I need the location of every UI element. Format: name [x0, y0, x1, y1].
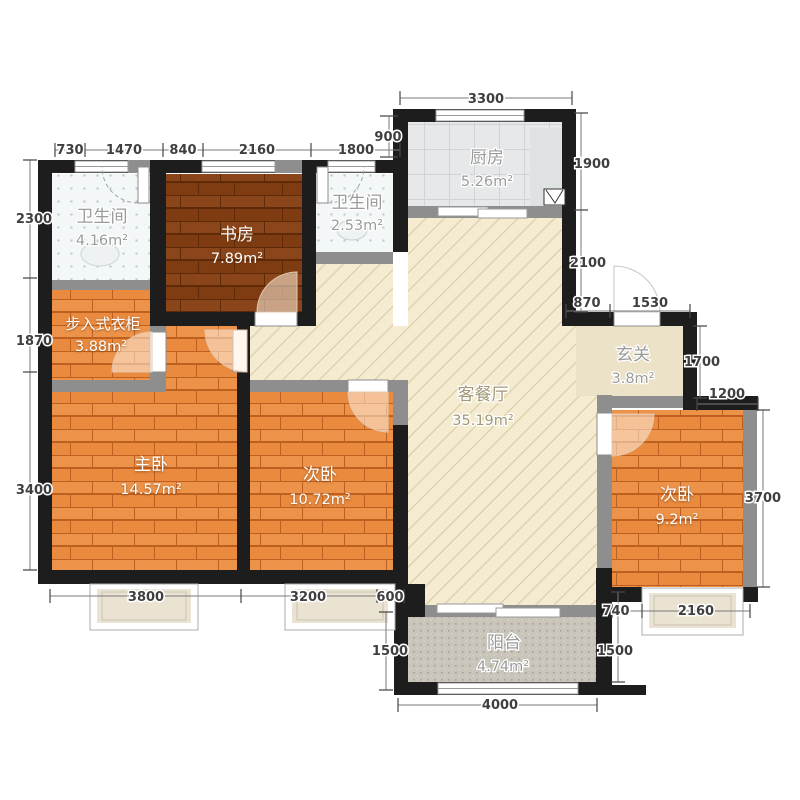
- floor-corridor: [250, 326, 408, 380]
- wall: [562, 109, 576, 326]
- room-label-bed3: 次卧: [660, 485, 694, 505]
- wall: [302, 160, 316, 326]
- dim-balcony-left-1500: 1500: [372, 644, 408, 659]
- room-label-bed2: 次卧: [303, 465, 337, 485]
- room-area-living: 35.19m²: [452, 413, 513, 429]
- wall: [38, 570, 408, 584]
- room-label-living: 客餐厅: [458, 385, 509, 405]
- room-label-balcony: 阳台: [487, 633, 521, 653]
- kitchen-slider-pane2: [478, 209, 527, 218]
- dim-top-840: 840: [169, 143, 196, 158]
- room-label-bath1: 卫生间: [77, 207, 128, 227]
- room-area-balcony: 4.74m²: [477, 659, 529, 675]
- room-area-kitchen: 5.26m²: [461, 174, 513, 190]
- dim-left-1870: 1870: [16, 334, 52, 349]
- floor-master: [52, 392, 237, 570]
- wall: [38, 380, 166, 392]
- dim-entry-870: 870: [573, 296, 600, 311]
- dim-1200: 1200: [709, 387, 745, 402]
- bed3-door-jamb: [597, 413, 612, 455]
- dim-bottom-600: 600: [376, 590, 403, 605]
- room-label-kitchen: 厨房: [470, 148, 504, 168]
- room-area-bath1: 4.16m²: [76, 233, 128, 249]
- room-label-study: 书房: [220, 225, 254, 245]
- room-area-bed2: 10.72m²: [289, 492, 350, 508]
- bath1-door-leaf: [138, 167, 149, 203]
- dim-left-2300: 2300: [16, 212, 52, 227]
- wall: [743, 587, 758, 602]
- room-area-closet: 3.88m²: [75, 339, 127, 355]
- room-area-bed3: 9.2m²: [656, 512, 699, 528]
- kitchen-door-icon: [544, 189, 565, 205]
- floor-living-main: [408, 218, 562, 605]
- dim-right-2100: 2100: [570, 256, 606, 271]
- dim-balcony-4000: 4000: [482, 698, 518, 713]
- room-area-bath2: 2.53m²: [331, 218, 383, 234]
- room-label-closet: 步入式衣柜: [65, 315, 140, 333]
- room-label-entry: 玄关: [616, 345, 650, 365]
- balcony-slider-pane1: [437, 604, 503, 613]
- floor-living-north: [316, 264, 393, 330]
- bed2-door-sill: [348, 380, 388, 392]
- room-area-master: 14.57m²: [120, 482, 181, 498]
- wall: [52, 280, 150, 290]
- dim-entry-1530: 1530: [632, 296, 668, 311]
- dim-kitchen-3300: 3300: [468, 92, 504, 107]
- wall: [612, 685, 646, 695]
- dim-bottom-3800: 3800: [128, 590, 164, 605]
- room-area-entry: 3.8m²: [612, 371, 655, 387]
- floor-plan: 730 1470 840 2160 1800 3300 900 1900 210…: [0, 0, 800, 800]
- dim-left-3400: 3400: [16, 483, 52, 498]
- wall: [612, 396, 683, 408]
- bath2-door-leaf: [317, 167, 328, 203]
- wall: [150, 160, 166, 326]
- floor-plan-canvas: 730 1470 840 2160 1800 3300 900 1900 210…: [0, 0, 800, 800]
- dim-top-1800: 1800: [338, 143, 374, 158]
- dim-top-730: 730: [56, 143, 83, 158]
- dim-bed3-740: 740: [602, 604, 629, 619]
- dim-3700: 3700: [745, 491, 781, 506]
- entry-door-sill: [614, 312, 660, 326]
- wall: [598, 587, 642, 602]
- wall: [393, 174, 408, 252]
- wall: [393, 425, 408, 584]
- room-area-study: 7.89m²: [211, 251, 263, 267]
- dim-1700: 1700: [684, 355, 720, 370]
- room-label-master: 主卧: [134, 455, 168, 475]
- room-label-bath2: 卫生间: [332, 193, 383, 213]
- dim-balcony-right-1500: 1500: [597, 644, 633, 659]
- dim-right-1900: 1900: [574, 157, 610, 172]
- dim-top-2160: 2160: [239, 143, 275, 158]
- dim-bed3-2160: 2160: [678, 604, 714, 619]
- study-door-sill: [255, 312, 297, 326]
- dim-top-1470: 1470: [106, 143, 142, 158]
- balcony-slider-pane2: [496, 608, 560, 617]
- wall: [596, 568, 612, 693]
- wall: [393, 380, 408, 425]
- dim-bottom-3200: 3200: [290, 590, 326, 605]
- dim-offset-900: 900: [374, 130, 401, 145]
